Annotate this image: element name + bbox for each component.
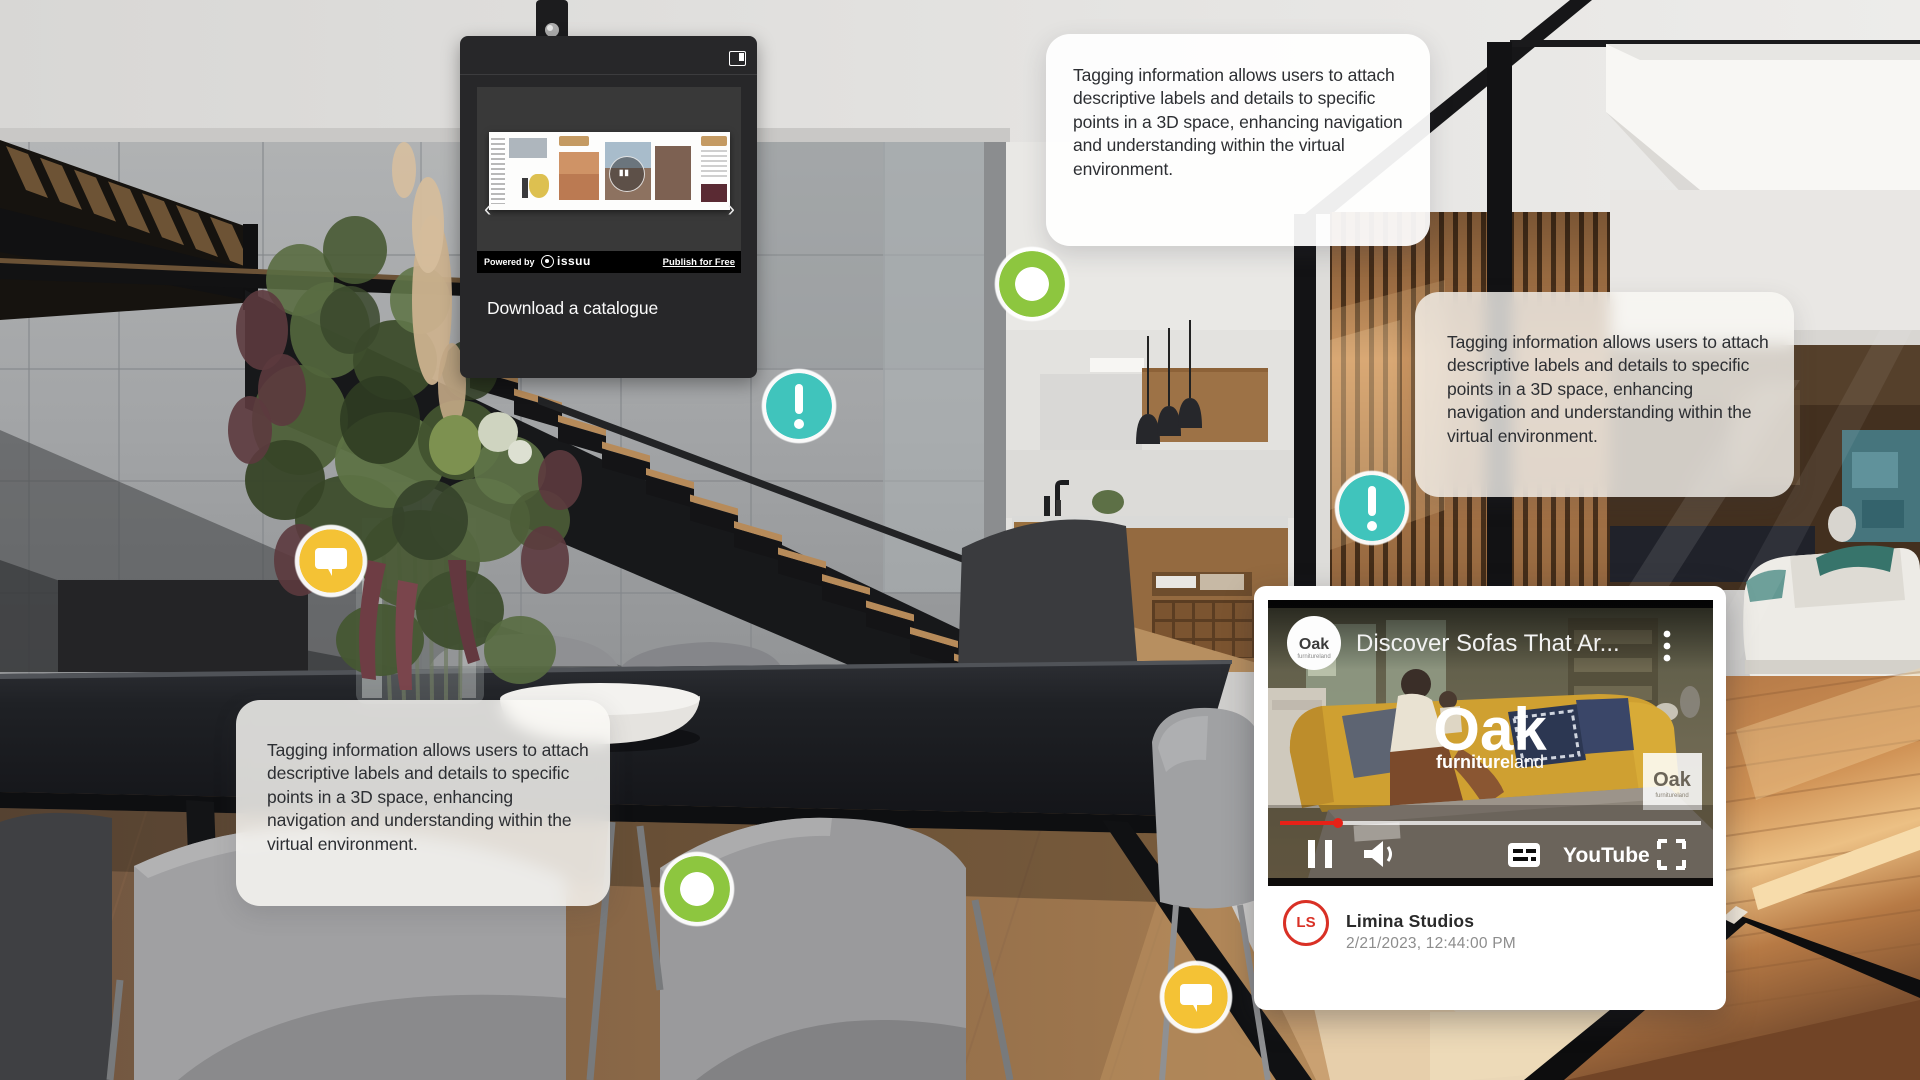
svg-text:Discover Sofas That Ar...: Discover Sofas That Ar... [1356,630,1620,657]
svg-text:furnitureland: furnitureland [1655,793,1688,799]
svg-text:Oak: Oak [1653,769,1692,791]
svg-text:Oak: Oak [1299,636,1329,653]
svg-text:furnitureland: furnitureland [1297,654,1330,660]
svg-text:furnitureland: furnitureland [1436,752,1544,772]
svg-text:YouTube: YouTube [1563,844,1650,867]
